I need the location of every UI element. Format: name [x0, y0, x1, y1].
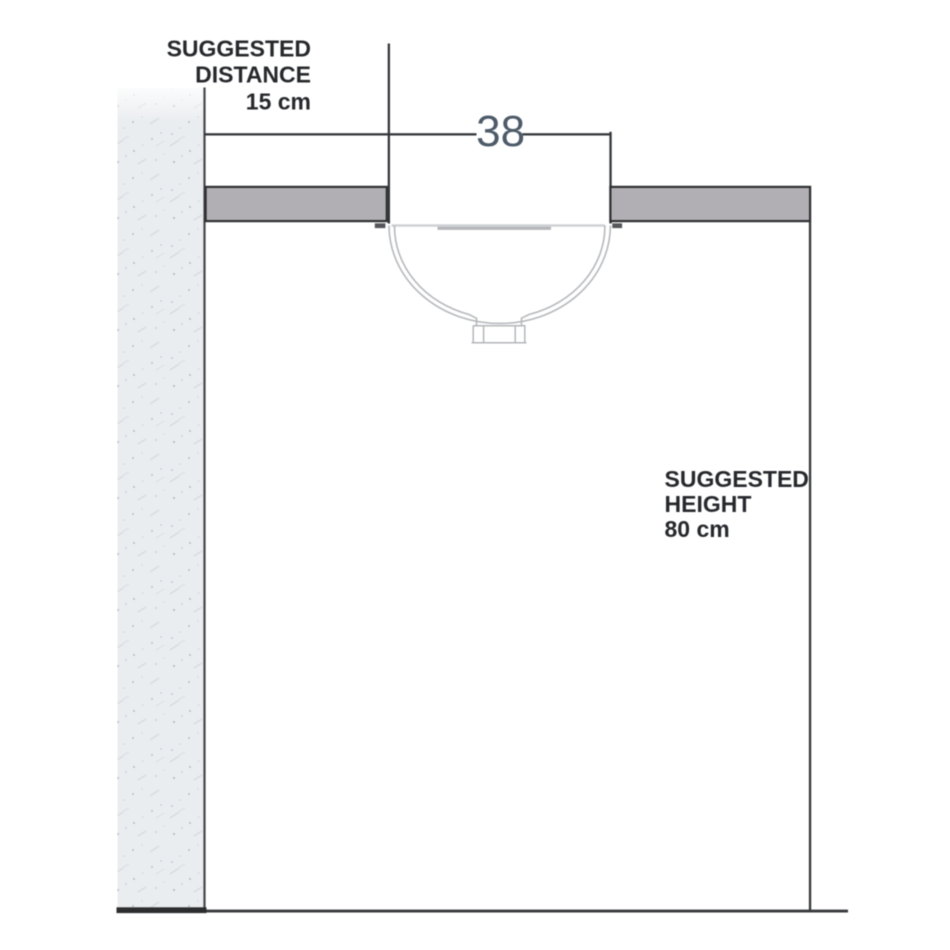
svg-text:HEIGHT: HEIGHT	[665, 491, 752, 517]
svg-text:SUGGESTED: SUGGESTED	[167, 36, 311, 62]
svg-text:15 cm: 15 cm	[246, 89, 311, 115]
svg-text:38: 38	[476, 107, 525, 156]
svg-text:80 cm: 80 cm	[665, 516, 730, 542]
svg-text:SUGGESTED: SUGGESTED	[665, 466, 809, 492]
svg-text:DISTANCE: DISTANCE	[195, 62, 311, 88]
